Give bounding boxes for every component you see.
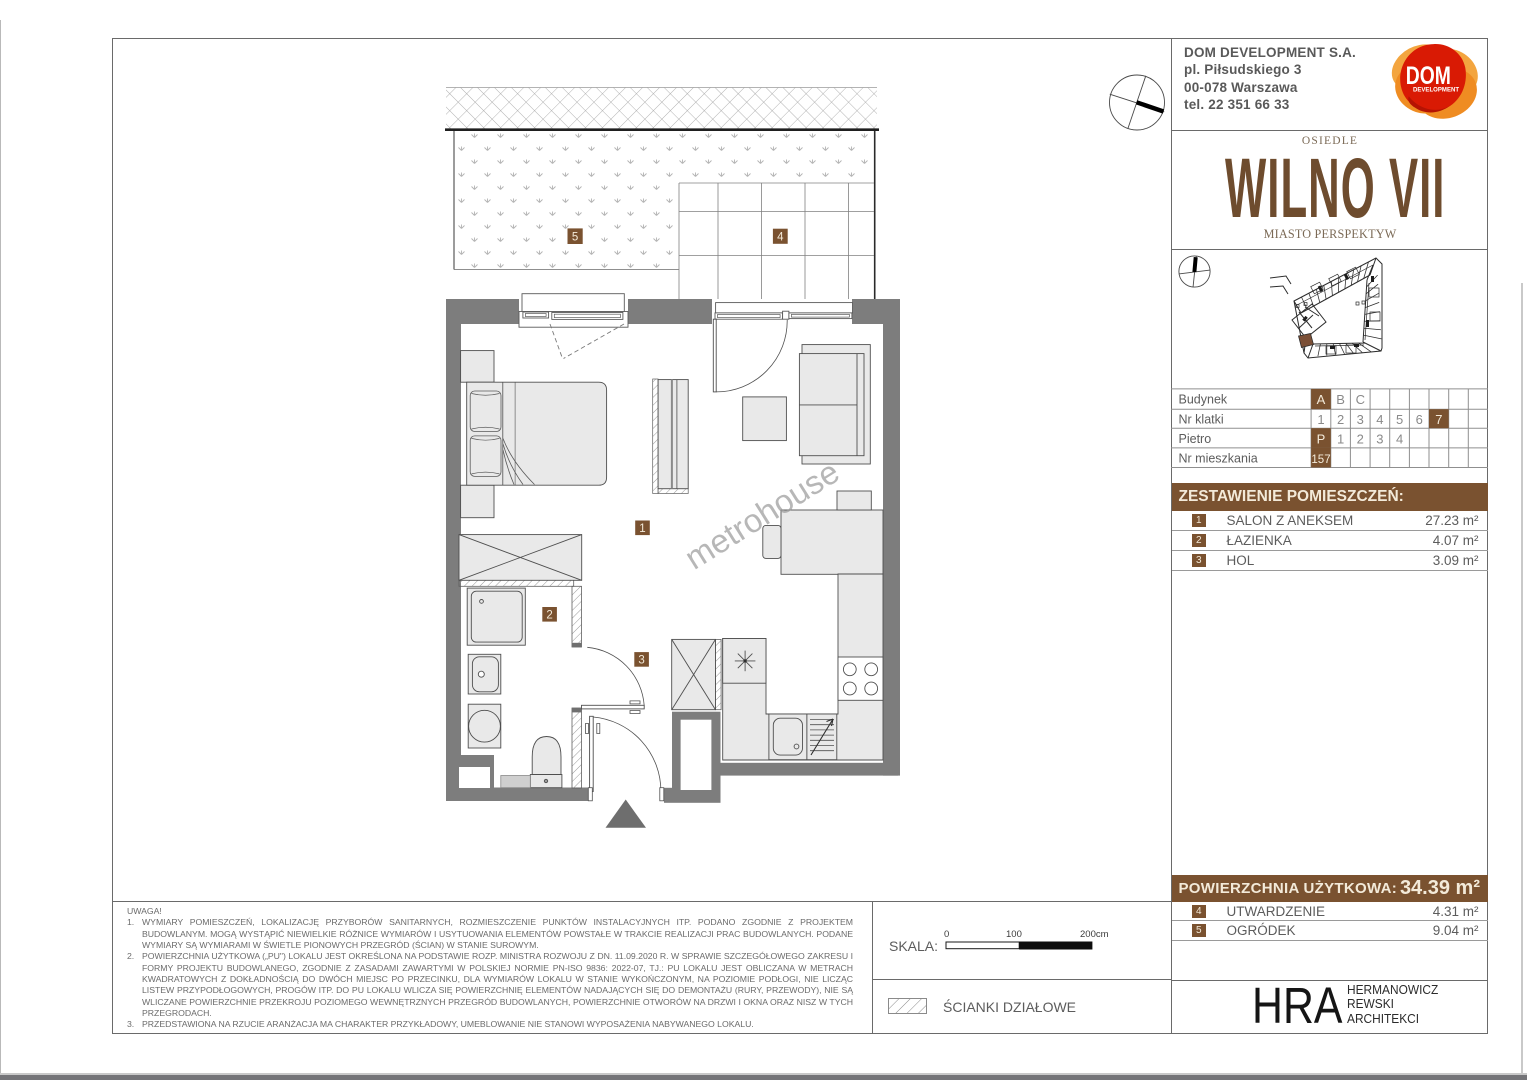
- svg-text:B: B: [1336, 392, 1345, 407]
- svg-text:200cm: 200cm: [1080, 929, 1109, 940]
- svg-text:2: 2: [1357, 431, 1364, 446]
- svg-text:4: 4: [1396, 431, 1403, 446]
- svg-text:A: A: [1317, 392, 1326, 407]
- svg-text:6: 6: [1416, 412, 1423, 427]
- svg-text:2: 2: [546, 610, 552, 622]
- svg-text:7: 7: [1435, 412, 1442, 427]
- svg-text:1: 1: [639, 523, 645, 535]
- svg-text:Nr klatki: Nr klatki: [1179, 413, 1224, 427]
- svg-text:4: 4: [777, 232, 784, 244]
- svg-text:0: 0: [944, 929, 949, 940]
- svg-text:1: 1: [1337, 431, 1344, 446]
- svg-text:157: 157: [1311, 454, 1330, 466]
- svg-text:5: 5: [572, 231, 578, 243]
- svg-text:2: 2: [1337, 412, 1344, 427]
- svg-text:3: 3: [1376, 431, 1383, 446]
- svg-text:C: C: [1356, 392, 1365, 407]
- svg-text:Budynek: Budynek: [1179, 393, 1228, 407]
- svg-text:100: 100: [1006, 929, 1022, 940]
- svg-text:DEVELOPMENT: DEVELOPMENT: [1413, 86, 1459, 93]
- svg-text:4: 4: [1376, 412, 1383, 427]
- svg-text:3: 3: [638, 655, 644, 667]
- svg-text:3: 3: [1357, 412, 1364, 427]
- svg-text:P: P: [1317, 431, 1326, 446]
- svg-text:5: 5: [1396, 412, 1403, 427]
- svg-text:Pietro: Pietro: [1179, 432, 1212, 446]
- svg-text:Nr mieszkania: Nr mieszkania: [1179, 452, 1258, 466]
- svg-text:1: 1: [1317, 412, 1324, 427]
